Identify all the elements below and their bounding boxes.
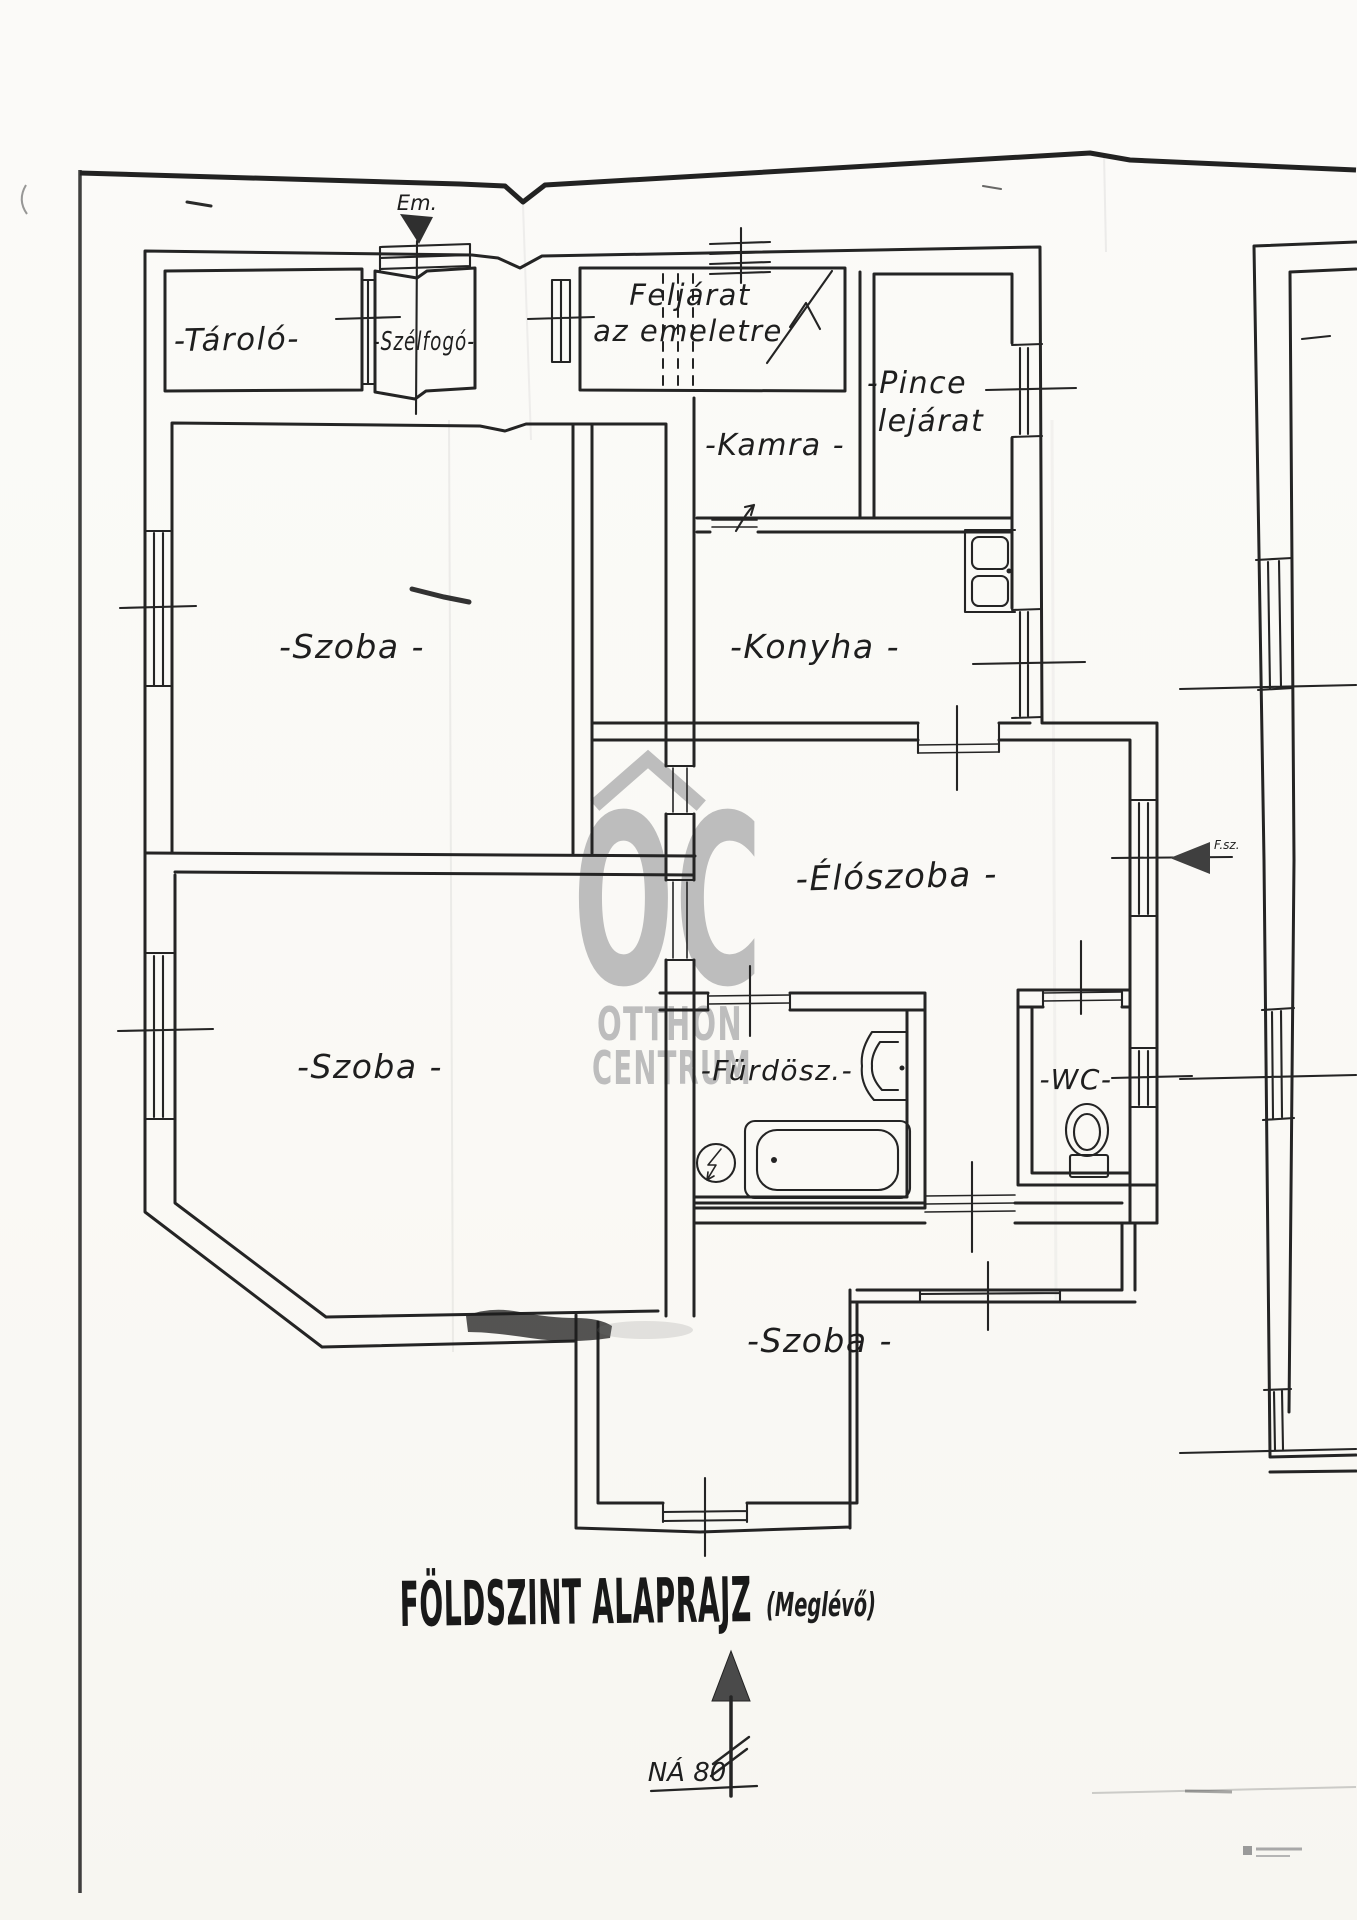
room-label-eloszoba: -Élószoba - — [795, 853, 998, 899]
plan-title-suffix: (Meglévő) — [766, 1585, 876, 1624]
room-label-tarolo: -Tároló- — [173, 321, 300, 359]
scanned-floorplan-page: OC OTTHON CENTRUM Em. — [0, 0, 1357, 1920]
water-heater — [697, 1144, 735, 1182]
em-arrow-icon — [400, 214, 433, 244]
fsz-arrow-icon — [1170, 842, 1210, 874]
bottom-szoba-walls — [576, 1203, 1157, 1556]
bolt-icon — [707, 1149, 721, 1180]
room-label-feljarat-1: Feljárat — [629, 278, 751, 312]
fsz-marker-label: F.sz. — [1214, 838, 1240, 852]
title-block: FÖLDSZINT ALAPRAJZ (Meglévő) — [399, 1563, 876, 1641]
room-label-pince-2: lejárat — [878, 404, 985, 439]
room-label-furdoszoba: -Fürdösz.- — [701, 1054, 854, 1087]
bottom-szoba-windows — [663, 1262, 1060, 1556]
room-label-pince-1: -Pince — [867, 366, 967, 401]
toilet — [1066, 1104, 1108, 1177]
washbasin-faucet — [900, 1066, 905, 1071]
sink-faucet — [1007, 569, 1012, 574]
right-wall-windows — [1112, 800, 1192, 1107]
kitchen-sink — [965, 530, 1015, 612]
room-label-kamra: -Kamra - — [705, 428, 845, 463]
watermark: OC OTTHON CENTRUM — [573, 759, 763, 1095]
em-direction-marker: Em. — [397, 191, 437, 414]
em-marker-label: Em. — [397, 191, 437, 215]
pen-stroke-artifact — [412, 589, 469, 602]
room-label-szoba-top: -Szoba - — [279, 627, 425, 666]
north-arrow: NÁ 80 — [648, 1651, 757, 1796]
entry-stairs — [380, 244, 470, 270]
sink-basin-bottom — [972, 576, 1008, 606]
left-wall-windows — [118, 531, 213, 1119]
staircase-treads — [710, 228, 770, 283]
washbasin — [862, 1032, 907, 1100]
room-label-wc: -WC- — [1040, 1063, 1113, 1096]
north-arrow-head-icon — [712, 1651, 750, 1701]
plan-title: FÖLDSZINT ALAPRAJZ — [399, 1563, 752, 1641]
konyha-window — [973, 609, 1085, 718]
bathtub — [745, 1121, 910, 1198]
room-label-konyha: -Konyha - — [730, 627, 900, 666]
room-label-szelfogo: -Szélfogó- — [373, 327, 475, 357]
floorplan-canvas: OC OTTHON CENTRUM Em. — [0, 0, 1357, 1920]
scan-stamp — [1243, 1846, 1302, 1856]
sink-basin-top — [972, 537, 1008, 569]
room-label-feljarat-2: az emeletre — [593, 314, 783, 348]
room-label-szoba-left: -Szoba - — [297, 1047, 443, 1086]
bathtub-drain — [771, 1157, 777, 1163]
room-label-szoba-bottom: -Szoba - — [747, 1321, 893, 1360]
north-scale-label: NÁ 80 — [648, 1756, 727, 1788]
